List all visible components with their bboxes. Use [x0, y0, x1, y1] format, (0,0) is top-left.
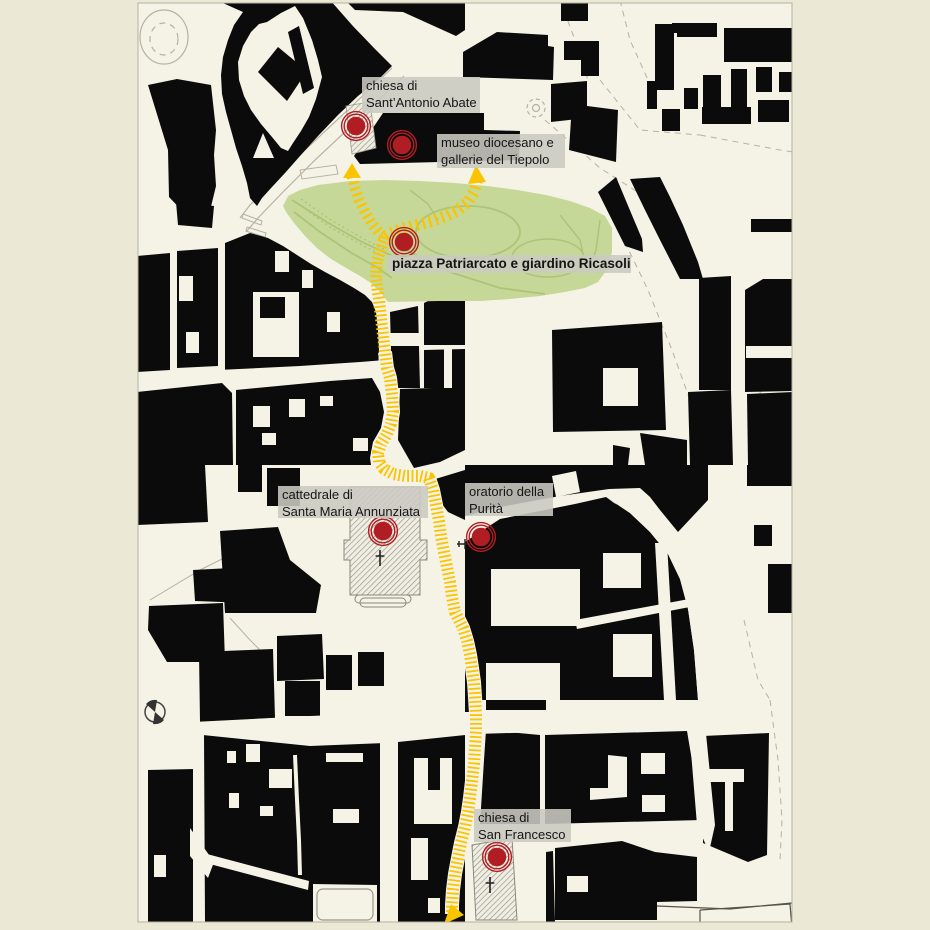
- svg-text:piazza Patriarcato e giardino: piazza Patriarcato e giardino Ricasoli: [392, 256, 631, 271]
- svg-text:chiesa di: chiesa di: [478, 810, 529, 825]
- svg-text:chiesa di: chiesa di: [366, 78, 417, 93]
- svg-text:gallerie del Tiepolo: gallerie del Tiepolo: [441, 152, 549, 167]
- svg-text:San Francesco: San Francesco: [478, 827, 565, 842]
- svg-text:Santa Maria Annunziata: Santa Maria Annunziata: [282, 504, 421, 519]
- svg-text:Purità: Purità: [469, 501, 504, 516]
- svg-text:museo diocesano e: museo diocesano e: [441, 135, 554, 150]
- svg-text:Sant’Antonio Abate: Sant’Antonio Abate: [366, 95, 477, 110]
- svg-text:oratorio della: oratorio della: [469, 484, 545, 499]
- svg-text:cattedrale di: cattedrale di: [282, 487, 353, 502]
